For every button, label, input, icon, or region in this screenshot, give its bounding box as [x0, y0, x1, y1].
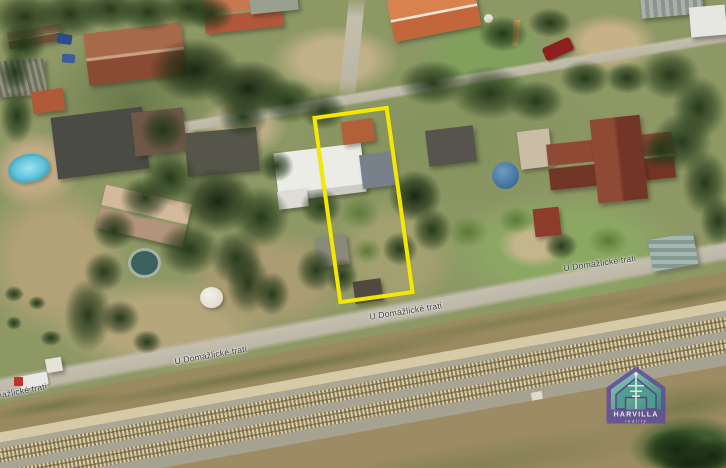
tree [140, 108, 186, 152]
red-shed-left [31, 88, 66, 114]
tree [92, 210, 136, 250]
tree [560, 60, 610, 96]
tree [478, 16, 528, 52]
white-hut-by-street [45, 357, 63, 374]
tree [528, 8, 572, 38]
bush [4, 286, 24, 302]
tree [0, 88, 34, 144]
bush [40, 330, 62, 346]
hip-roof-wing-vertical [590, 115, 649, 204]
bush [498, 206, 534, 234]
white-dome-tank [200, 287, 223, 308]
bush [588, 226, 628, 256]
tree [700, 196, 726, 246]
bush [28, 296, 46, 310]
tree [218, 96, 268, 138]
tree [258, 150, 294, 182]
tree [254, 272, 290, 316]
tree [640, 130, 680, 170]
bush [544, 232, 578, 260]
round-pool-dark [128, 248, 161, 278]
blue-water-tank [492, 162, 519, 189]
watermark-tagline-text: reality [625, 418, 648, 424]
bush [6, 316, 22, 330]
bush [448, 216, 488, 248]
watermark-brand-text: HARVILLA [613, 410, 658, 419]
white-roof-topright [689, 4, 726, 37]
tree [0, 52, 30, 92]
aerial-map-canvas: U Domažlické trati U Domažlické trati U … [0, 0, 726, 468]
tree [412, 208, 452, 252]
tree [508, 80, 564, 122]
blue-car-2 [62, 54, 76, 64]
gray-building-right-of-parcel [425, 125, 477, 167]
tree [100, 300, 140, 336]
watermark-logo: HARVILLA reality [606, 366, 666, 424]
tree [84, 252, 124, 292]
bush [132, 330, 162, 354]
